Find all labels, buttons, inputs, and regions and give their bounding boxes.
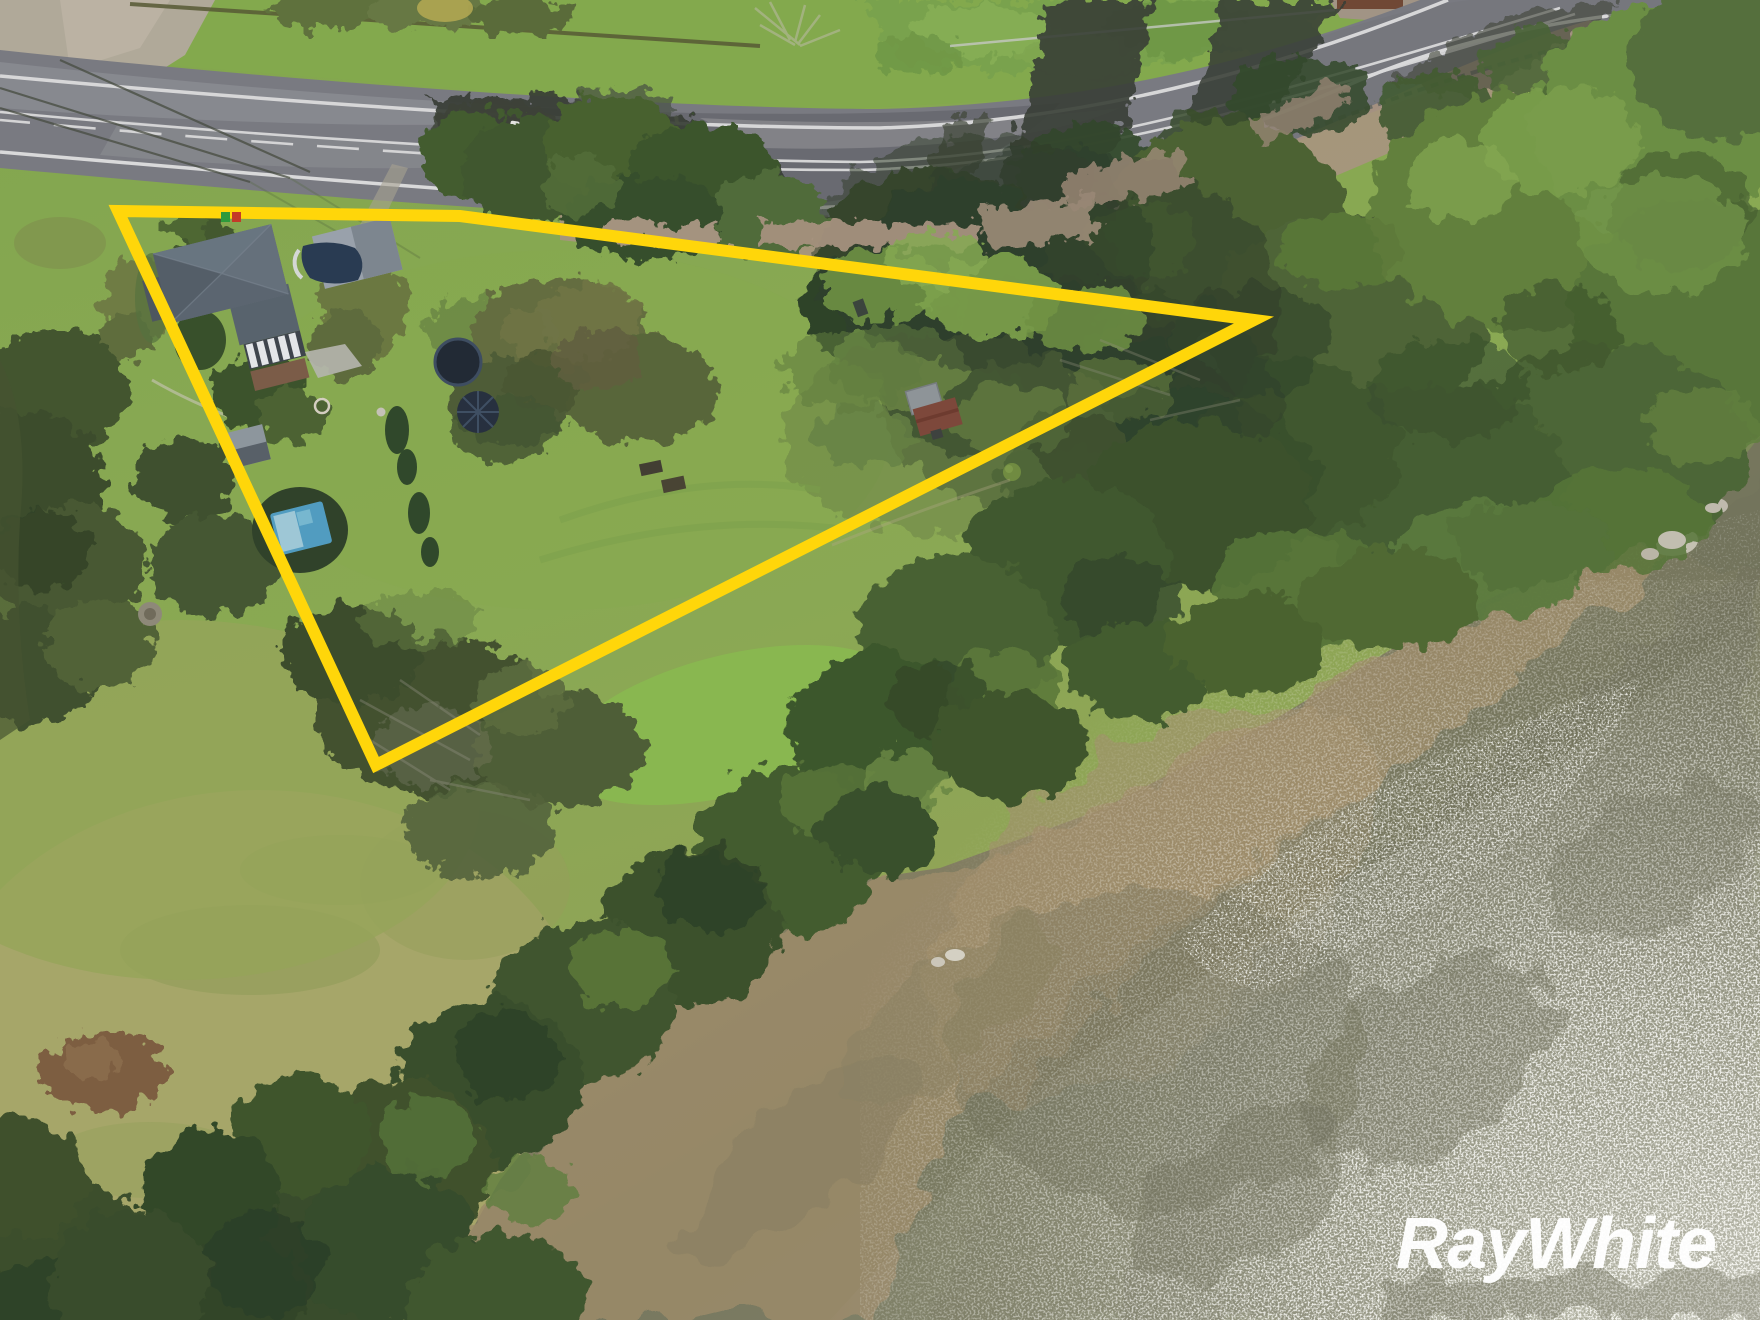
- svg-text:RayWhite: RayWhite: [1396, 1204, 1716, 1284]
